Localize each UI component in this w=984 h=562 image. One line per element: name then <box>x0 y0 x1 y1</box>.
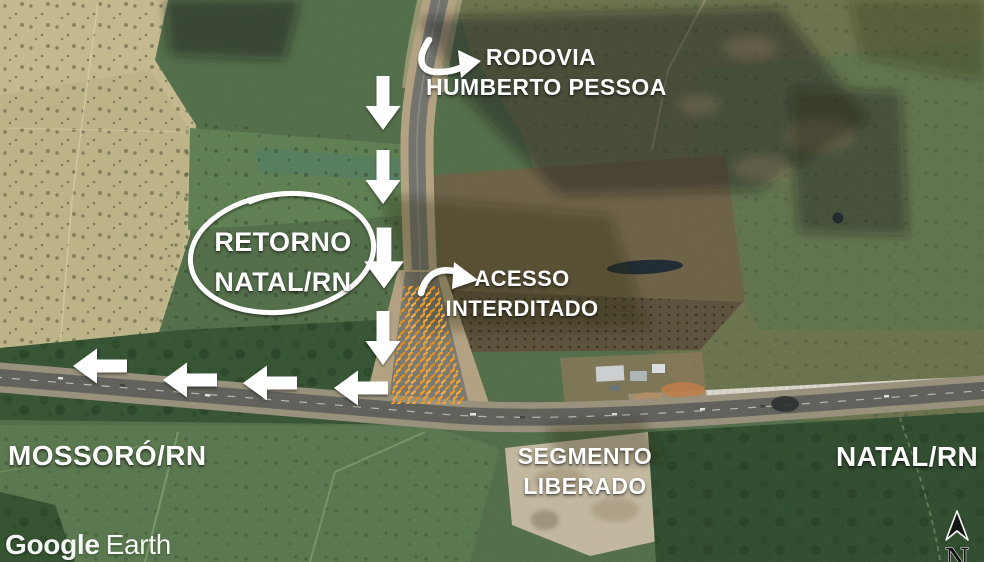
label-segmento-line1: SEGMENTO <box>517 441 653 471</box>
label-acesso-line1: ACESSO <box>444 264 600 294</box>
label-retorno-natal: RETORNO NATAL/RN <box>191 222 375 302</box>
label-rodovia-line2: HUMBERTO PESSOA <box>426 72 656 102</box>
label-rodovia: RODOVIA HUMBERTO PESSOA <box>426 42 656 102</box>
watermark-brand: Google <box>5 529 100 560</box>
arrow-left-icon <box>334 371 388 406</box>
google-earth-watermark: GoogleEarth <box>5 529 171 561</box>
label-natal: NATAL/RN <box>836 441 978 473</box>
arrow-left-icon <box>243 366 297 401</box>
north-arrow-icon: N <box>945 511 970 562</box>
arrow-down-icon <box>366 150 401 204</box>
label-mossoro: MOSSORÓ/RN <box>8 440 206 472</box>
label-segmento-line2: LIBERADO <box>517 471 653 501</box>
label-rodovia-line1: RODOVIA <box>426 42 656 72</box>
label-retorno-line2: NATAL/RN <box>191 262 375 302</box>
label-acesso-interditado: ACESSO INTERDITADO <box>444 264 600 324</box>
route-arrows-down <box>364 76 404 365</box>
route-arrows-left <box>73 349 388 406</box>
watermark-product: Earth <box>106 529 171 560</box>
compass-letter: N <box>945 541 970 562</box>
arrow-left-icon <box>73 349 127 384</box>
satellite-map: N RODOVIA HUMBERTO PESSOA RETORNO NATAL/… <box>0 0 984 562</box>
label-segmento-liberado: SEGMENTO LIBERADO <box>517 441 653 501</box>
arrow-left-icon <box>163 363 217 398</box>
label-retorno-line1: RETORNO <box>191 222 375 262</box>
arrow-down-icon <box>366 76 401 130</box>
arrow-down-icon <box>366 311 401 365</box>
label-acesso-line2: INTERDITADO <box>444 294 600 324</box>
